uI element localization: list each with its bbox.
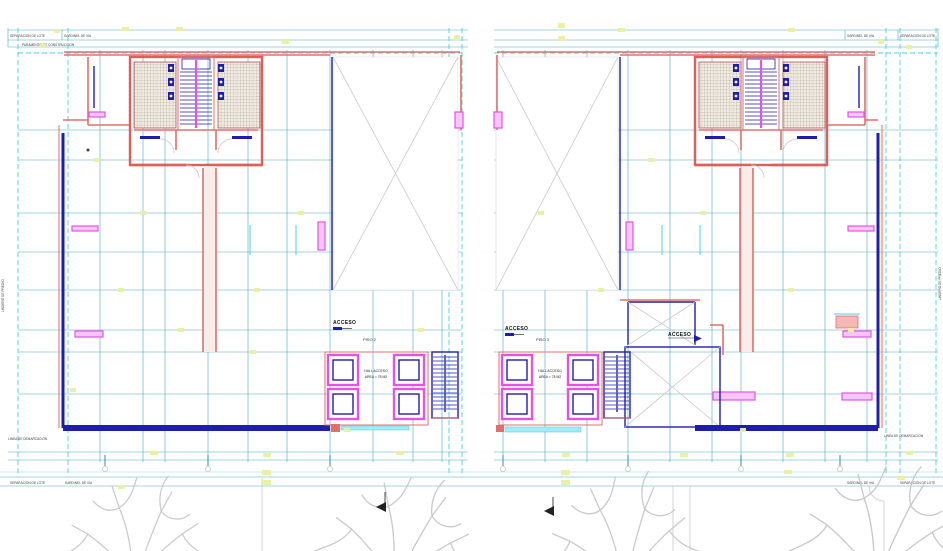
window-sill (843, 331, 871, 337)
property-line-label-right: LINDERO DE PREDIO (938, 267, 942, 300)
acceso-label-right-plan-west: ACCESO (505, 326, 528, 332)
street-band: SEPARACION DE LOTE SARDINEL DE VIA SARDI… (0, 452, 943, 551)
right-plan-void (494, 55, 620, 290)
hall-area-label: AREA = 78 M2 (365, 375, 387, 379)
acceso-door-mark (333, 327, 342, 330)
direction-arrow-left (376, 492, 386, 512)
street-trees (48, 458, 943, 551)
window-sill (626, 222, 633, 250)
annotation-top-right-1: SARDINEL DE VIA (847, 34, 875, 38)
annotation-bottom-left-1: SEPARACION DE LOTE (10, 481, 45, 485)
equipment-block (836, 316, 858, 328)
acceso-door-mark (505, 333, 514, 336)
left-plan-top-annotation-band: SEPARACION DE LOTE SARDINEL DE VIA PARAM… (8, 28, 468, 47)
direction-arrow-right (544, 497, 554, 516)
window-sill (318, 222, 325, 250)
demarcation-label-left: LINEA DE DEMARCACION (8, 437, 48, 441)
window-sill (713, 392, 755, 400)
bottom-facade-wall (695, 425, 878, 431)
left-plan-void (332, 55, 463, 290)
floor-label-left-plan: PISO 2 (363, 337, 377, 342)
canopy-strip (505, 427, 581, 432)
annotation-bottom-right-2: SEPARACION DE LOTE (900, 481, 935, 485)
annotation-top-left-1: SEPARACION DE LOTE (10, 34, 45, 38)
right-plan-scissor-stair (604, 352, 630, 418)
acceso-arrow (694, 335, 702, 342)
survey-point-dot (87, 149, 90, 152)
right-plan: SARDINEL DE VIA SEPARACION DE LOTE (494, 28, 942, 475)
left-plan: SEPARACION DE LOTE SARDINEL DE VIA PARAM… (1, 28, 468, 475)
window-sill (842, 393, 872, 400)
hall-acceso-label: HALL ACCESO (364, 369, 388, 373)
window-sill (75, 331, 103, 337)
hatched-room-east (783, 62, 825, 128)
corridor-fill (205, 166, 216, 352)
drawing-sheet: SEPARACION DE LOTE SARDINEL DE VIA PARAM… (0, 0, 943, 551)
hatched-room-east (218, 62, 260, 128)
right-plan-elevator-bank: HALL ACCESO AREA = 78 M2 (499, 352, 602, 425)
corridor-fill (742, 166, 753, 352)
annotation-top-left-row2: PARAMENTO DE CONSTRUCCION (22, 43, 75, 47)
floor-plan-drawing: SEPARACION DE LOTE SARDINEL DE VIA PARAM… (0, 0, 943, 551)
left-plan-scissor-stair (432, 352, 458, 418)
hall-acceso-label: HALL ACCESO (538, 369, 562, 373)
window-sill (72, 226, 98, 231)
bottom-facade-wall (63, 425, 330, 431)
property-line-label-left: LINDERO DE PREDIO (1, 279, 5, 312)
right-plan-mid-voids (620, 300, 723, 427)
demarcation-label-right: LINEA DE DEMARCACION (884, 434, 924, 438)
acceso-label-right-plan-east: ACCESO (668, 332, 691, 338)
canopy-strip (341, 426, 409, 430)
hall-area-label: AREA = 78 M2 (539, 375, 561, 379)
left-plan-elevator-bank: HALL ACCESO AREA = 78 M2 (325, 352, 428, 425)
window-sill (848, 226, 874, 231)
annotation-bottom-left-2: SARDINEL DE VIA (65, 481, 93, 485)
acceso-label-left-plan: ACCESO (333, 320, 356, 326)
floor-label-right-plan: PISO 3 (536, 337, 550, 342)
annotation-top-right-2: SEPARACION DE LOTE (900, 34, 935, 38)
